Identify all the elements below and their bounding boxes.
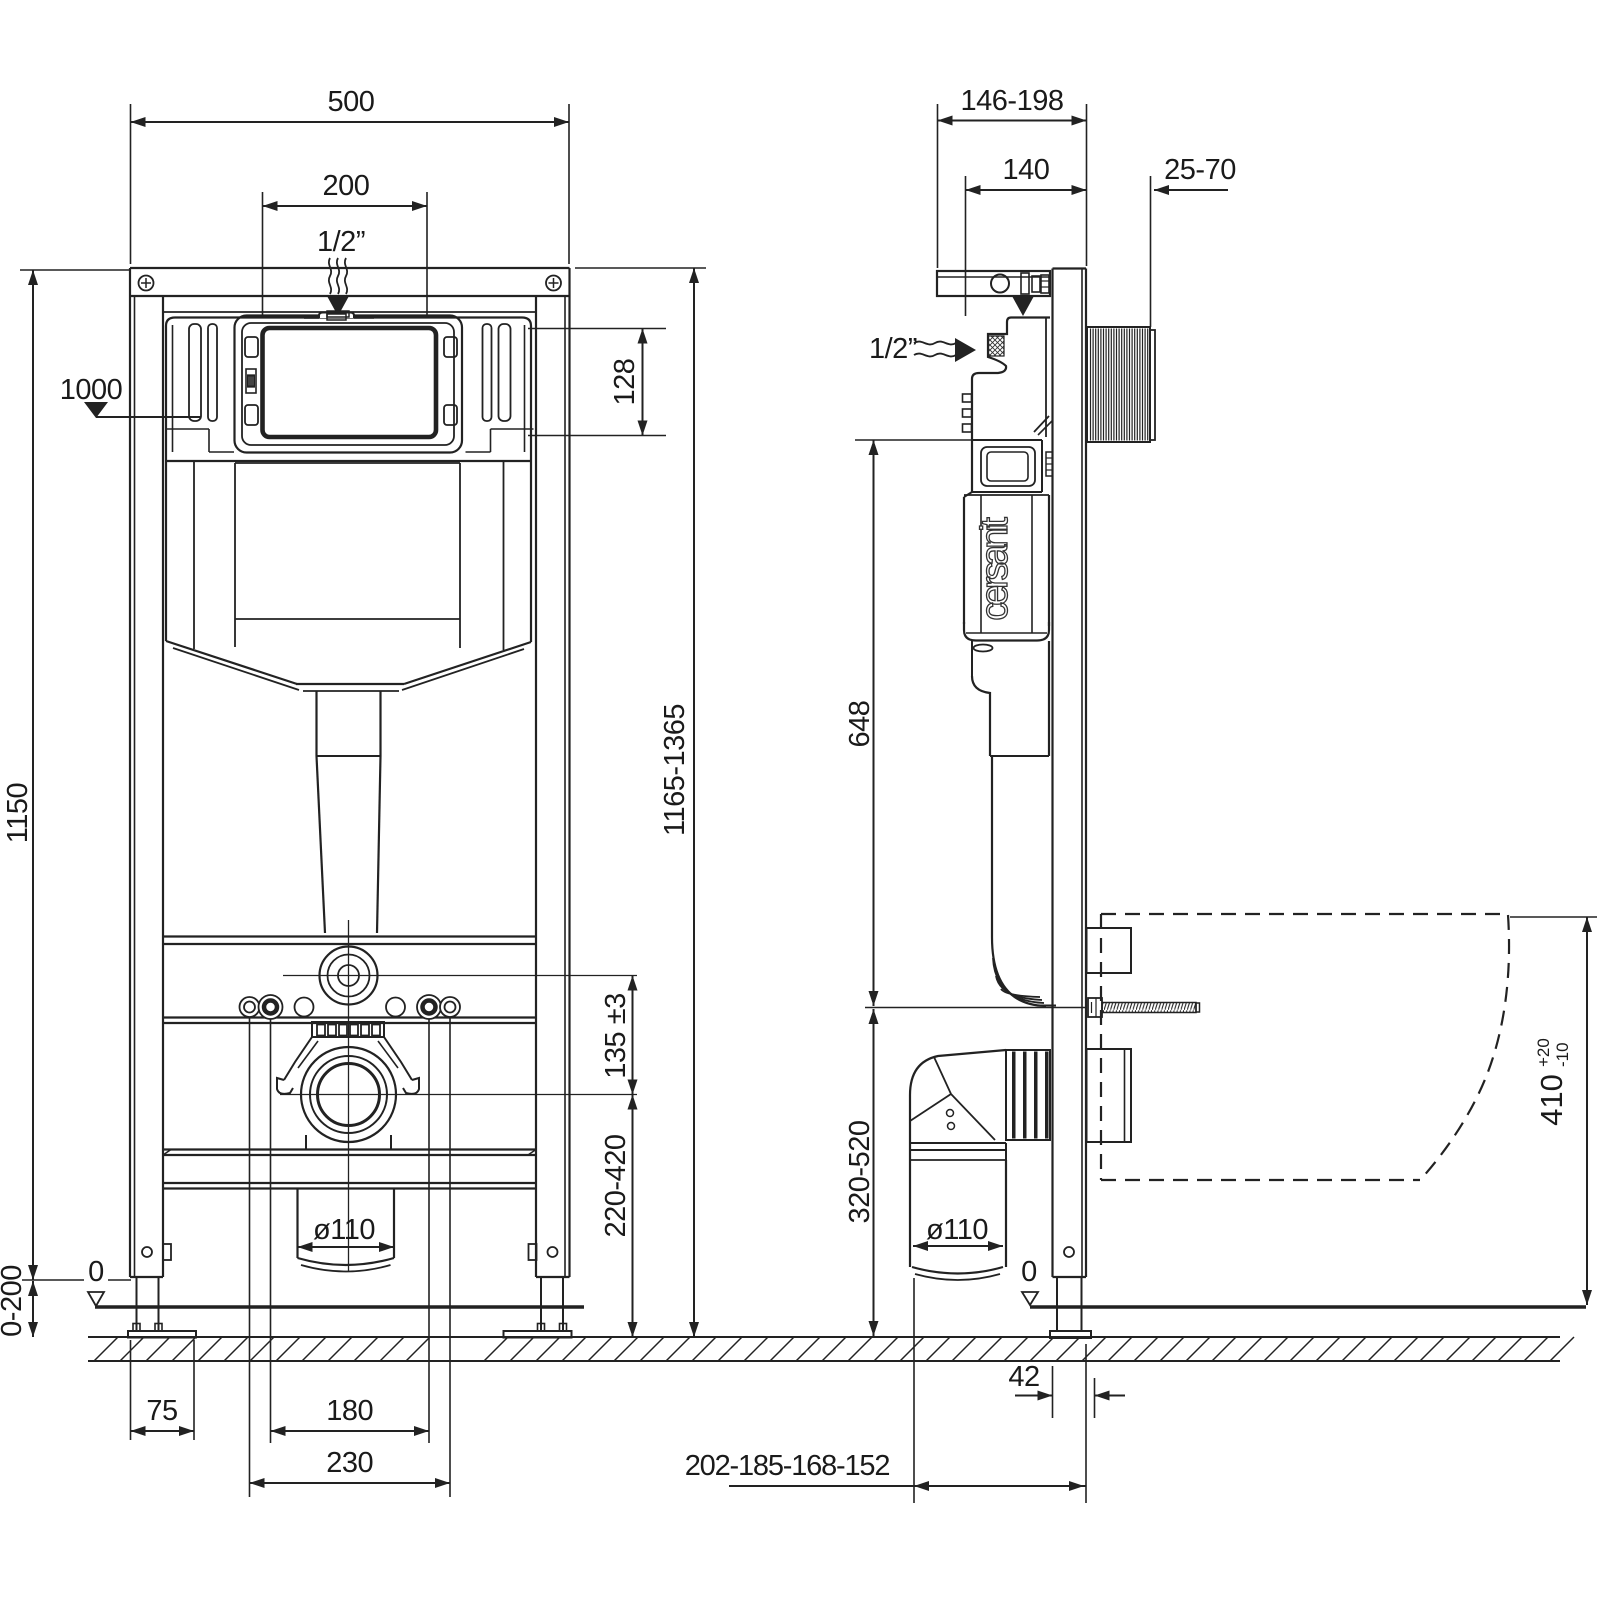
svg-text:202-185-168-152: 202-185-168-152 xyxy=(685,1450,890,1482)
svg-text:-10: -10 xyxy=(1553,1042,1572,1067)
svg-text:1/2”: 1/2” xyxy=(869,333,917,365)
svg-text:648: 648 xyxy=(844,701,876,748)
svg-text:128: 128 xyxy=(609,359,641,406)
svg-text:ø110: ø110 xyxy=(926,1214,988,1246)
svg-text:220-420: 220-420 xyxy=(600,1135,632,1238)
svg-text:ø110: ø110 xyxy=(313,1214,375,1246)
svg-text:75: 75 xyxy=(146,1395,177,1427)
svg-text:42: 42 xyxy=(1008,1361,1039,1393)
svg-text:0-200: 0-200 xyxy=(0,1265,28,1337)
svg-text:200: 200 xyxy=(323,170,370,202)
svg-text:0: 0 xyxy=(88,1256,104,1288)
svg-text:1000: 1000 xyxy=(60,374,123,406)
svg-text:146-198: 146-198 xyxy=(961,85,1064,117)
svg-text:140: 140 xyxy=(1003,154,1050,186)
svg-text:1150: 1150 xyxy=(2,783,34,843)
svg-text:+20: +20 xyxy=(1534,1038,1553,1067)
svg-text:cersanit: cersanit xyxy=(974,517,1016,621)
svg-text:320-520: 320-520 xyxy=(844,1121,876,1224)
svg-text:500: 500 xyxy=(328,86,375,118)
svg-text:230: 230 xyxy=(326,1447,373,1479)
svg-text:25-70: 25-70 xyxy=(1164,154,1236,186)
svg-text:0: 0 xyxy=(1021,1256,1037,1288)
svg-text:410: 410 xyxy=(1534,1074,1569,1126)
svg-text:1/2”: 1/2” xyxy=(317,226,365,258)
svg-text:180: 180 xyxy=(326,1395,373,1427)
svg-text:135 ±3: 135 ±3 xyxy=(600,993,632,1079)
svg-text:1165-1365: 1165-1365 xyxy=(659,704,691,836)
